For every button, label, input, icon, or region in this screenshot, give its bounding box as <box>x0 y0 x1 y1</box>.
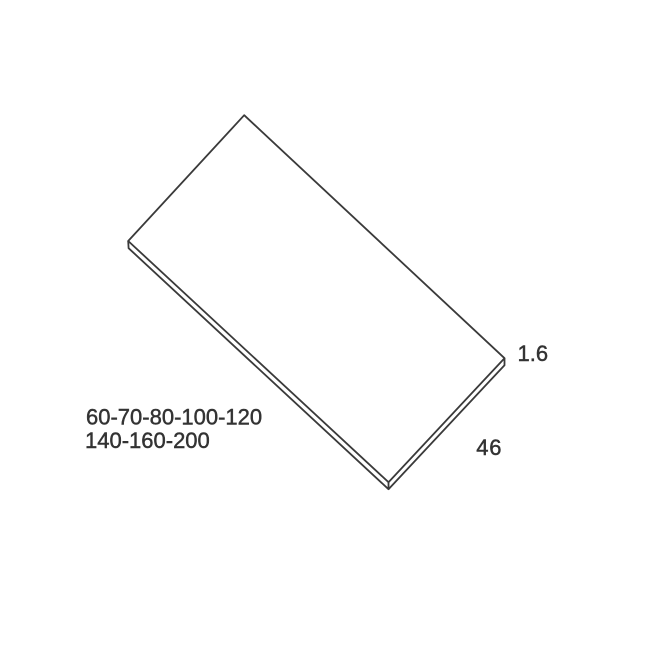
svg-text:140-160-200: 140-160-200 <box>85 428 210 453</box>
svg-text:60-70-80-100-120: 60-70-80-100-120 <box>86 405 262 430</box>
svg-text:1.6: 1.6 <box>518 341 549 366</box>
svg-text:46: 46 <box>476 435 502 460</box>
